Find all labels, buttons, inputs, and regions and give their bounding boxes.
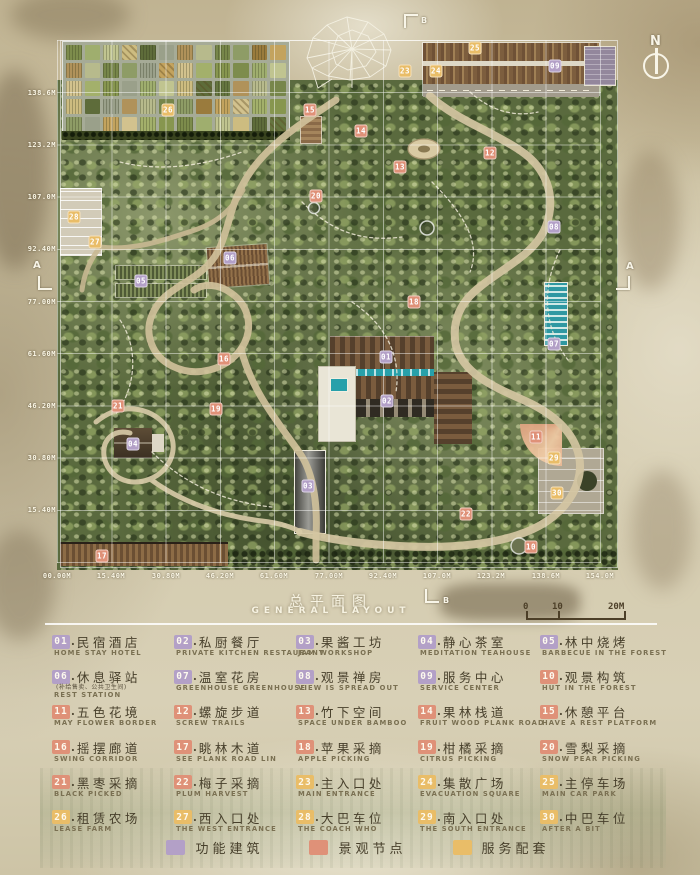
map-label-20: 20 [310,190,323,203]
farm-plot [252,45,268,60]
map-label-26: 26 [162,104,175,117]
farm-plot [122,45,138,60]
legend-dot: . [437,776,441,789]
category-swatch-service [453,840,472,855]
pavilion-roof [116,266,206,279]
farm-plot [177,117,193,132]
farm-plot [103,117,119,132]
farm-plot [103,99,119,114]
farm-plot [270,99,286,114]
map-label-28: 28 [68,211,81,224]
legend-name-zh: 眺林木道 [199,738,263,757]
legend-dot: . [315,705,319,718]
map-label-10: 10 [525,541,538,554]
legend-name-en: BLACK PICKED [52,790,174,799]
legend-item-line: 10.观景构筑 [540,669,662,684]
map-label-04: 04 [127,438,140,451]
category-label: 功能建筑 [195,838,263,857]
deck-pool [330,378,348,392]
farm-plot [270,63,286,78]
legend-badge-28: 28 [296,810,314,824]
section-b-bottom-bracket [425,589,439,603]
map-label-21: 21 [112,400,125,413]
legend-badge-23: 23 [296,775,314,789]
map-label-24: 24 [430,65,443,78]
legend-name-en: HAVE A REST PLATFORM [540,719,662,728]
legend-name-zh: 柑橘采摘 [443,738,507,757]
legend-item-line: 03.果酱工坊 [296,634,418,649]
map-label-17: 17 [96,550,109,563]
legend-dot: . [193,776,197,789]
legend-badge-08: 08 [296,670,314,684]
farm-plot [66,99,82,114]
farm-plot [233,81,249,96]
legend-item-line: 09.服务中心 [418,669,540,684]
legend-item-line: 22.梅子采摘 [174,775,296,790]
legend-dot: . [71,776,75,789]
farm-plot [270,45,286,60]
section-a-right-label: A [626,261,634,272]
legend-name-zh: 梅子采摘 [199,773,263,792]
map-label-30: 30 [551,487,564,500]
legend-name-en: SWING CORRIDOR [52,755,174,764]
greenhouse-building [544,282,568,346]
legend-item-line: 18.苹果采摘 [296,740,418,755]
legend-name-en: PRIVATE KITCHEN RESTAURANT [174,649,296,658]
legend-dot: . [559,705,563,718]
legend-badge-07: 07 [174,670,192,684]
legend-item-line: 25.主停车场 [540,775,662,790]
hotel-pool-strip [356,369,434,376]
legend-badge-06: 06 [52,670,70,684]
map-label-27: 27 [89,236,102,249]
main-parking-lot [422,42,600,96]
legend-item-line: 01.民宿酒店 [52,634,174,649]
legend-badge-19: 19 [418,740,436,754]
parking-access-road [423,84,599,97]
map-label-15: 15 [304,104,317,117]
scale-bar: 0 10 20M [520,602,632,622]
legend-item-09: 09.服务中心SERVICE CENTER [418,669,540,704]
legend-item-02: 02.私厨餐厅PRIVATE KITCHEN RESTAURANT [174,634,296,669]
farm-plot [215,63,231,78]
farm-plot [122,81,138,96]
legend-badge-27: 27 [174,810,192,824]
forest-boardwalk [60,542,228,566]
legend-item-line: 29.南入口处 [418,810,540,825]
service-center-building [584,46,616,86]
legend-dot: . [315,811,319,824]
legend-dot: . [193,670,197,683]
legend-item-line: 16.摇摆廊道 [52,740,174,755]
legend-name-en: SCREW TRAILS [174,719,296,728]
axis-left-label: 61.60M [14,350,56,358]
pavilion-roof [116,284,206,297]
legend-dot: . [559,635,563,648]
legend-item-line: 30.中巴车位 [540,810,662,825]
legend-item-line: 06.休息驿站 [52,669,174,684]
legend-dot: . [437,741,441,754]
axis-bottom-label: 138.6M [532,572,560,580]
general-layout-plan: { "title": { "zh": "总平面图", "en": "GENERA… [0,0,700,875]
legend-item-18: 18.苹果采摘APPLE PICKING [296,740,418,775]
legend-dot: . [315,635,319,648]
legend-name-en: PLUM HARVEST [174,790,296,799]
legend-badge-21: 21 [52,775,70,789]
legend-item-line: 13.竹下空间 [296,704,418,719]
legend-item-13: 13.竹下空间SPACE UNDER BAMBOO [296,704,418,739]
map-label-29: 29 [548,452,561,465]
map-label-09: 09 [549,60,562,73]
canopy-sketch [307,17,391,88]
legend-item-24: 24.集散广场EVACUATION SQUARE [418,775,540,810]
scale-tick-20m: 20M [608,602,624,612]
legend-item-line: 20.雪梨采摘 [540,740,662,755]
map-label-25: 25 [469,42,482,55]
farm-plot [196,117,212,132]
legend-name-en: HUT IN THE FOREST [540,684,662,693]
legend-dot: . [71,741,75,754]
legend-badge-09: 09 [418,670,436,684]
legend-item-23: 23.主入口处MAIN ENTRANCE [296,775,418,810]
farm-plot [252,99,268,114]
farm-plot [233,117,249,132]
farm-plot [159,63,175,78]
map-label-22: 22 [460,508,473,521]
map-label-18: 18 [408,296,421,309]
axis-left-label: 92.40M [14,245,56,253]
farm-plot [66,117,82,132]
map-label-12: 12 [484,147,497,160]
farm-plot [66,45,82,60]
farm-plot [215,45,231,60]
legend-dot: . [193,635,197,648]
farm-plot [215,117,231,132]
farm-plot [85,117,101,132]
map-label-14: 14 [355,125,368,138]
legend-name-en: SERVICE CENTER [418,684,540,693]
legend-item-line: 27.西入口处 [174,810,296,825]
legend-item-05: 05.林中烧烤BARBECUE IN THE FOREST [540,634,662,669]
farm-hedge-row [62,131,290,140]
farm-plot [85,45,101,60]
farm-plot [103,63,119,78]
stain-left-top [0,70,50,270]
legend-item-03: 03.果酱工坊JAM WORKSHOP [296,634,418,669]
farm-plot [159,117,175,132]
axis-left-label: 30.80M [14,454,56,462]
legend-badge-03: 03 [296,635,314,649]
scale-bar-line [526,618,626,620]
legend-item-20: 20.雪梨采摘SNOW PEAR PICKING [540,740,662,775]
legend-badge-04: 04 [418,635,436,649]
legend-name-zh: 黑枣采摘 [77,773,141,792]
map-label-02: 02 [381,395,394,408]
farm-plot [140,117,156,132]
legend-item-06: 06.休息驿站(补给售卖、公共卫生间)REST STATION [52,669,174,704]
axis-bottom-label: 30.80M [152,572,180,580]
legend-badge-05: 05 [540,635,558,649]
stain-top-left-corner [10,0,130,40]
legend-badge-22: 22 [174,775,192,789]
farm-plot [270,81,286,96]
legend-name-en: REST STATION [52,691,174,700]
legend-badge-30: 30 [540,810,558,824]
legend-item-21: 21.黑枣采摘BLACK PICKED [52,775,174,810]
legend-badge-17: 17 [174,740,192,754]
legend-name-en: CITRUS PICKING [418,755,540,764]
legend-dot: . [71,670,75,683]
stain-right-low [632,470,692,590]
hotel-court-bays [356,399,434,417]
section-b-bottom-label: B [443,596,449,605]
axis-left-label: 77.00M [14,298,56,306]
legend-dot: . [437,811,441,824]
farm-plot [103,81,119,96]
axis-bottom-label: 61.60M [260,572,288,580]
axis-left-label: 107.0M [14,193,56,201]
legend-name-en: THE WEST ENTRANCE [174,825,296,834]
hotel-east-wing [434,372,472,444]
legend-name-en: SNOW PEAR PICKING [540,755,662,764]
legend-item-line: 04.静心茶室 [418,634,540,649]
category-key: 功能建筑景观节点服务配套 [52,838,664,857]
farm-plot [140,81,156,96]
legend-dot: . [71,635,75,648]
legend-name-en: EVACUATION SQUARE [418,790,540,799]
legend-name-en: MAIN CAR PARK [540,790,662,799]
legend-name-zh: 集散广场 [443,773,507,792]
farm-plot [122,117,138,132]
legend-item-line: 23.主入口处 [296,775,418,790]
map-label-01: 01 [380,351,393,364]
teahouse-deck [152,434,164,452]
section-a-left-label: A [33,260,41,271]
legend-item-line: 28.大巴车位 [296,810,418,825]
legend-name-en: SEE PLANK ROAD LIN [174,755,296,764]
legend-dot: . [559,670,563,683]
legend-name-en: JAM WORKSHOP [296,649,418,658]
farm-plot [122,63,138,78]
legend-name-en: MAIN ENTRANCE [296,790,418,799]
legend-name-zh: 雪梨采摘 [565,738,629,757]
legend-dot: . [559,811,563,824]
legend-name-en: GREENHOUSE GREENHOUSE [174,684,296,693]
legend-dot: . [71,705,75,718]
legend-item-line: 19.柑橘采摘 [418,740,540,755]
legend-badge-12: 12 [174,705,192,719]
legend-dot: . [437,705,441,718]
legend-name-en: VIEW IS SPREAD OUT [296,684,418,693]
axis-bottom-label: 77.00M [315,572,343,580]
lease-farm-plots [62,41,290,136]
legend-badge-24: 24 [418,775,436,789]
legend-dot: . [315,741,319,754]
farm-plot [233,99,249,114]
legend-dot: . [71,811,75,824]
legend-dot: . [193,741,197,754]
legend-item-14: 14.果林栈道FRUIT WOOD PLANK ROAD [418,704,540,739]
category-swatch-landscape [309,840,328,855]
farm-plot [122,99,138,114]
axis-bottom-label: 92.40M [369,572,397,580]
legend-item-line: 02.私厨餐厅 [174,634,296,649]
farm-plot [196,81,212,96]
map-label-13: 13 [394,161,407,174]
section-b-top-label: B [421,16,427,25]
rest-platform-structure [300,116,322,144]
legend-item-22: 22.梅子采摘PLUM HARVEST [174,775,296,810]
map-label-06: 06 [224,252,237,265]
farm-plot [196,45,212,60]
legend-dot: . [193,811,197,824]
farm-plot [177,81,193,96]
parking-stalls-row [423,43,599,61]
section-a-left-bracket [38,276,52,290]
legend-item-04: 04.静心茶室MEDITATION TEAHOUSE [418,634,540,669]
legend: 01.民宿酒店HOME STAY HOTEL02.私厨餐厅PRIVATE KIT… [52,634,664,845]
axis-bottom-label: 123.2M [477,572,505,580]
legend-item-line: 05.林中烧烤 [540,634,662,649]
legend-badge-18: 18 [296,740,314,754]
legend-name-en: HOME STAY HOTEL [52,649,174,658]
farm-plot [252,117,268,132]
farm-plot [159,45,175,60]
farm-plot [66,63,82,78]
legend-badge-15: 15 [540,705,558,719]
legend-badge-25: 25 [540,775,558,789]
legend-name-zh: 苹果采摘 [321,738,385,757]
category-swatch-building [166,840,185,855]
farm-plot [140,99,156,114]
category-key-building: 功能建筑 [166,838,263,857]
axis-bottom-label: 46.20M [206,572,234,580]
rest-station-building [207,244,270,288]
legend-dot: . [193,705,197,718]
legend-item-line: 17.眺林木道 [174,740,296,755]
barbecue-pavilions [116,266,206,298]
legend-dot: . [559,741,563,754]
category-label: 景观节点 [338,838,406,857]
farm-plot [177,63,193,78]
title-divider [45,623,657,625]
legend-badge-13: 13 [296,705,314,719]
legend-name-zh: 主停车场 [565,773,629,792]
category-key-landscape: 景观节点 [309,838,406,857]
map-label-23: 23 [399,65,412,78]
legend-badge-02: 02 [174,635,192,649]
legend-item-line: 07.温室花房 [174,669,296,684]
legend-item-15: 15.休憩平台HAVE A REST PLATFORM [540,704,662,739]
map-label-19: 19 [210,403,223,416]
legend-name-en: THE SOUTH ENTRANCE [418,825,540,834]
farm-plot [159,81,175,96]
farm-plot [85,63,101,78]
parking-stalls-row [423,66,599,84]
farm-plot [140,63,156,78]
section-a-right-bracket [616,276,630,290]
legend-badge-26: 26 [52,810,70,824]
legend-item-line: 15.休憩平台 [540,704,662,719]
legend-badge-16: 16 [52,740,70,754]
legend-name-en: FRUIT WOOD PLANK ROAD [418,719,540,728]
farm-plot [252,81,268,96]
map-label-11: 11 [530,431,543,444]
legend-item-07: 07.温室花房GREENHOUSE GREENHOUSE [174,669,296,704]
legend-item-01: 01.民宿酒店HOME STAY HOTEL [52,634,174,669]
farm-plot [103,45,119,60]
farm-plot [270,117,286,132]
legend-name-en: MAY FLOWER BORDER [52,719,174,728]
legend-badge-11: 11 [52,705,70,719]
legend-name-zh: 主入口处 [321,773,385,792]
map-label-16: 16 [218,353,231,366]
legend-item-line: 21.黑枣采摘 [52,775,174,790]
farm-plot [215,81,231,96]
farm-plot [252,63,268,78]
axis-bottom-label: 107.0M [423,572,451,580]
axis-bottom-label: 15.40M [97,572,125,580]
legend-name-en: MEDITATION TEAHOUSE [418,649,540,658]
farm-plot [196,63,212,78]
legend-name-en: APPLE PICKING [296,755,418,764]
axis-bottom-label: 154.0M [586,572,614,580]
legend-item-12: 12.螺旋步道SCREW TRAILS [174,704,296,739]
legend-item-line: 14.果林栈道 [418,704,540,719]
legend-badge-01: 01 [52,635,70,649]
plan-title-en: GENERAL LAYOUT [251,606,410,616]
legend-dot: . [559,776,563,789]
farm-plot [233,45,249,60]
map-label-08: 08 [548,221,561,234]
legend-badge-14: 14 [418,705,436,719]
legend-item-25: 25.主停车场MAIN CAR PARK [540,775,662,810]
legend-item-line: 12.螺旋步道 [174,704,296,719]
farm-plot [177,99,193,114]
farm-plot [196,99,212,114]
legend-badge-29: 29 [418,810,436,824]
legend-name-en: BARBECUE IN THE FOREST [540,649,662,658]
legend-dot: . [437,635,441,648]
legend-item-line: 26.租赁农场 [52,810,174,825]
legend-item-16: 16.摇摆廊道SWING CORRIDOR [52,740,174,775]
farm-plot [177,45,193,60]
farm-plot [215,99,231,114]
legend-name-en: THE COACH WHO [296,825,418,834]
map-label-07: 07 [548,338,561,351]
legend-dot: . [315,670,319,683]
axis-left-label: 138.6M [14,89,56,97]
hotel-building-mid [356,376,434,399]
farm-plot [233,63,249,78]
legend-badge-20: 20 [540,740,558,754]
legend-subnote: (补给售卖、公共卫生间) [52,684,174,691]
map-label-03: 03 [302,480,315,493]
compass-ring-icon [643,53,669,79]
legend-name-en: SPACE UNDER BAMBOO [296,719,418,728]
legend-dot: . [315,776,319,789]
category-label: 服务配套 [482,838,550,857]
farm-plot [85,99,101,114]
section-b-top-bracket [404,14,418,28]
category-key-service: 服务配套 [453,838,550,857]
farm-plot [85,81,101,96]
axis-left-label: 15.40M [14,506,56,514]
axis-bottom-label: 00.00M [43,572,71,580]
legend-item-line: 08.观景禅房 [296,669,418,684]
legend-item-10: 10.观景构筑HUT IN THE FOREST [540,669,662,704]
legend-item-11: 11.五色花境MAY FLOWER BORDER [52,704,174,739]
